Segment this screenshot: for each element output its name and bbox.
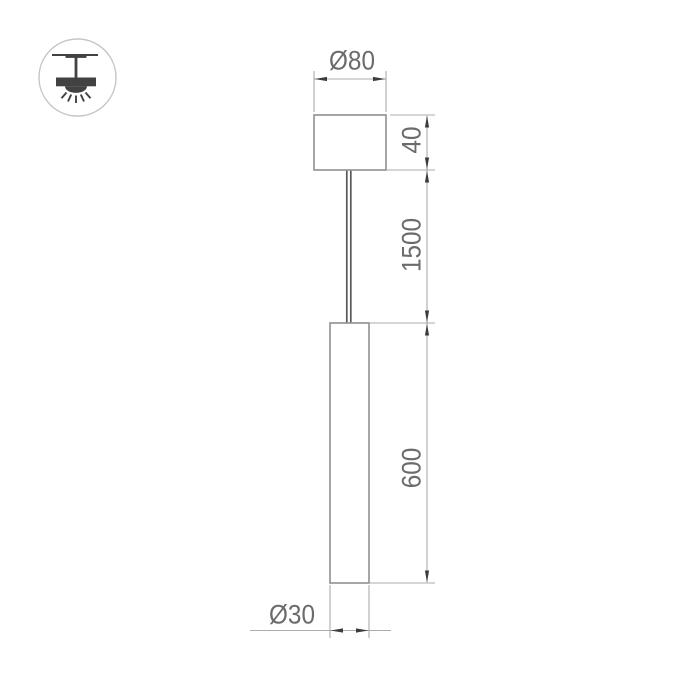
tube-rect [330,323,369,583]
ceiling-pendant-icon [39,39,116,116]
arrow-left [315,77,328,81]
canopy-rect [314,115,386,170]
arrow-right [373,77,386,81]
arrow-down-canopy-bottom [425,158,429,170]
icon-stem [75,58,78,79]
technical-drawing [0,0,700,700]
dim-label-tube-length: 600 [399,448,426,489]
arrow-down-tube-bottom [425,571,429,583]
dimension-drawing-canvas: Ø80 40 1500 600 Ø30 [0,0,700,700]
dim-label-canopy-height: 40 [399,126,426,153]
dimension-right-chain [370,115,435,583]
arrow-up-tube-top [425,324,429,336]
dimension-canopy-diameter [314,71,386,112]
arrow-left [331,628,344,632]
dim-label-suspension-length: 1500 [399,218,426,272]
dim-label-tube-diameter: Ø30 [269,602,315,629]
icon-mount-plate [66,54,87,58]
dim-label-canopy-diameter: Ø80 [329,48,375,75]
arrow-up-wire-top [425,171,429,183]
icon-shade [56,78,96,87]
arrow-down-tube-top [425,311,429,323]
lamp-outline [314,115,386,583]
arrow-right [356,628,369,632]
